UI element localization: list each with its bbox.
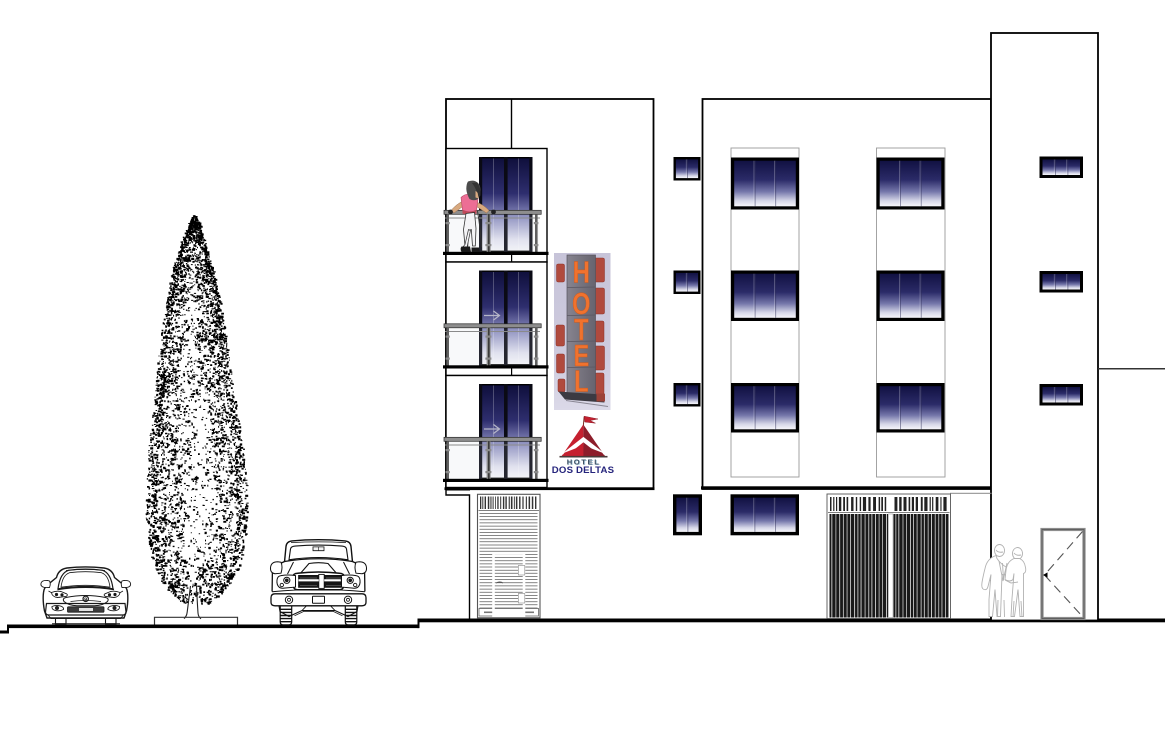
svg-text:H: H — [573, 254, 590, 289]
svg-text:DOS DELTAS: DOS DELTAS — [552, 465, 615, 476]
